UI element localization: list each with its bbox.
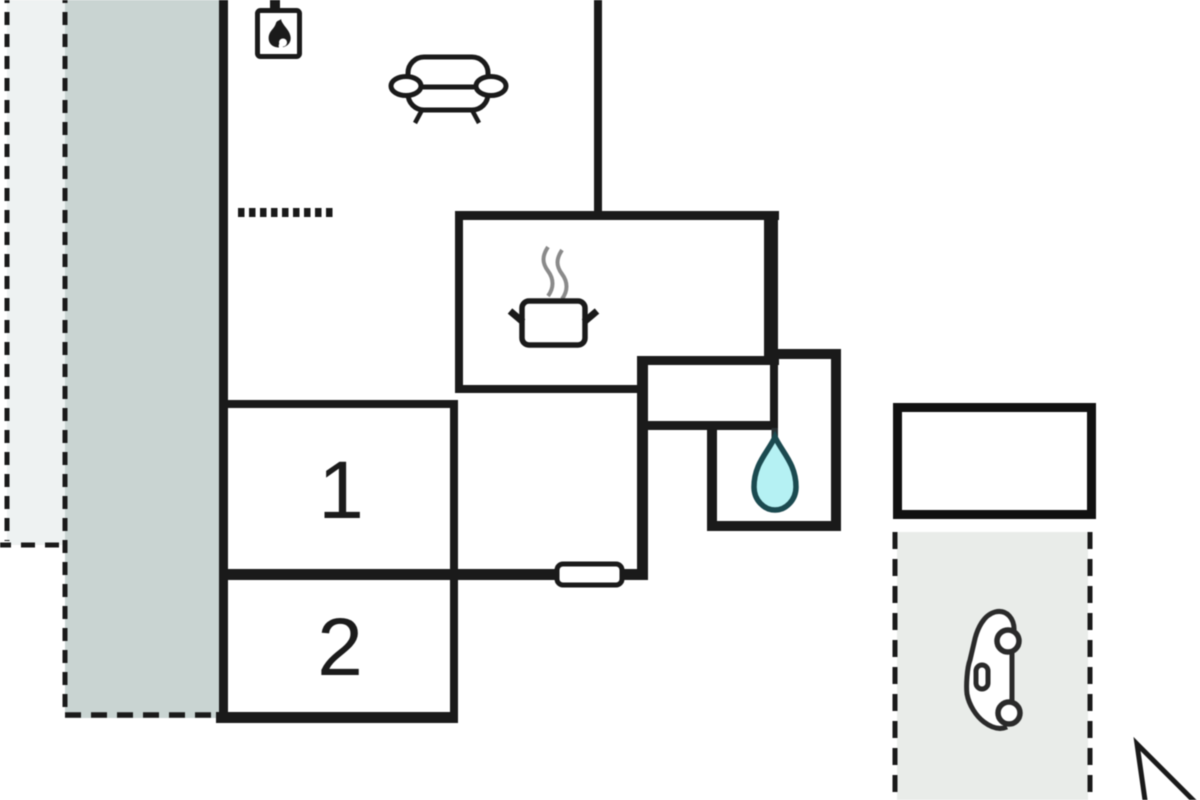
- svg-text:2: 2: [317, 602, 363, 693]
- svg-text:1: 1: [318, 445, 364, 536]
